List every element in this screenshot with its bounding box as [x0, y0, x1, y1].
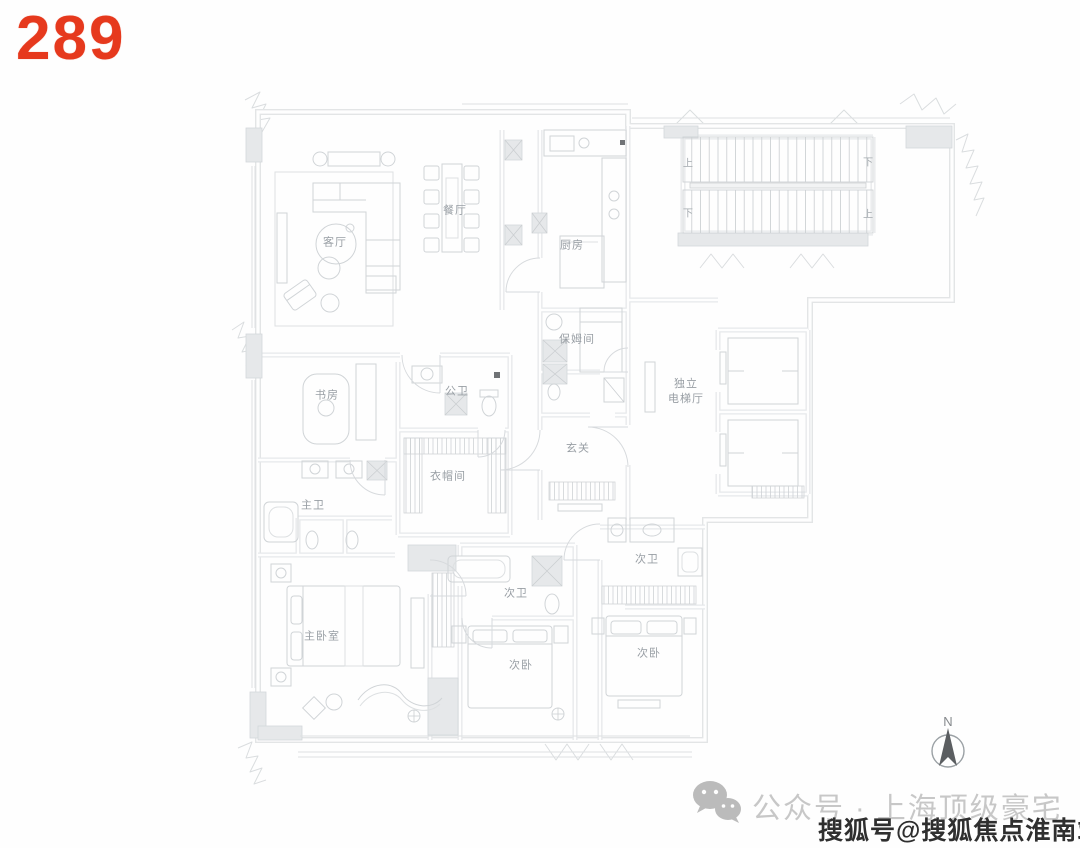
room-label-master-bedroom: 主卧室	[304, 630, 340, 645]
compass-n-label: N	[943, 714, 952, 729]
room-label-living-room: 客厅	[323, 236, 347, 251]
room-label-walk-in-closet: 衣帽间	[430, 470, 466, 485]
sohu-watermark-text: 搜狐号@搜狐焦点淮南站	[818, 811, 1080, 847]
stair-direction-label-2: 下	[683, 205, 693, 220]
study-furniture	[303, 364, 376, 444]
master-bath-fixtures	[264, 461, 387, 549]
room-label-bathroom-3: 次卫	[635, 553, 659, 568]
room-label-nanny-room: 保姆间	[559, 333, 595, 348]
room-label-study: 书房	[315, 389, 339, 404]
floor-plan: 客厅餐厅厨房保姆间独立 电梯厅玄关书房公卫衣帽间主卫主卧室次卫次卧次卫次卧上下下…	[0, 0, 1080, 848]
room-label-bedroom-3: 次卧	[637, 647, 661, 662]
wechat-icon	[690, 779, 744, 825]
room-label-bedroom-2: 次卧	[509, 659, 533, 674]
room-label-master-bathroom: 主卫	[301, 499, 325, 514]
bedroom-3-furniture	[592, 518, 702, 708]
room-label-guest-bathroom: 公卫	[445, 385, 469, 400]
kitchen-furniture	[505, 130, 626, 288]
floor-plan-drawing	[0, 0, 1080, 848]
master-bedroom-furniture	[271, 564, 442, 722]
compass-north-icon: N	[920, 702, 980, 786]
room-label-dining-room: 餐厅	[443, 204, 467, 219]
room-label-kitchen: 厨房	[560, 239, 584, 254]
room-label-foyer: 玄关	[566, 442, 590, 457]
stair-direction-label-1: 下	[863, 154, 873, 169]
room-label-bathroom-2: 次卫	[504, 587, 528, 602]
room-label-elevator-hall: 独立 电梯厅	[668, 377, 704, 407]
stair-direction-label-3: 上	[863, 206, 873, 221]
staircase	[683, 137, 873, 268]
floor-plan-page: 289	[0, 0, 1080, 848]
stair-direction-label-0: 上	[683, 155, 693, 170]
